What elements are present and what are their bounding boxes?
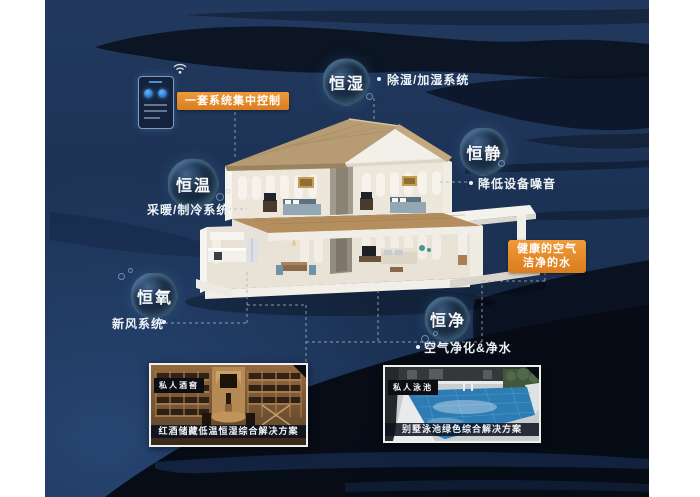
- poster: 一套系统集中控制 健康的空气 洁净的水 恒湿 恒静 恒温 恒氧 恒净 除湿/加湿…: [0, 0, 700, 497]
- healthy-air-water-label: 健康的空气 洁净的水: [508, 240, 586, 273]
- bubble-constant-humidity: 恒湿: [322, 58, 370, 106]
- clean-water-line: 洁净的水: [508, 256, 586, 270]
- phone-control-button: [144, 89, 153, 98]
- central-control-label: 一套系统集中控制: [177, 92, 289, 110]
- panel-caption-pool: 别墅泳池绿色综合解决方案: [385, 423, 539, 436]
- smart-control-panel: [138, 76, 174, 129]
- panel-tag-wine: 私人酒窖: [154, 378, 204, 393]
- bubble-constant-clean: 恒净: [424, 296, 470, 342]
- bubble-constant-oxygen: 恒氧: [130, 272, 178, 320]
- small-bubble-icon: [118, 273, 125, 280]
- small-bubble-icon: [433, 331, 438, 336]
- phone-title-bar: [149, 81, 162, 83]
- phone-row: [144, 104, 167, 106]
- phone-row: [144, 117, 160, 119]
- connector-dot: [416, 345, 420, 349]
- connector-dot: [226, 206, 230, 210]
- small-bubble-icon: [128, 268, 133, 273]
- phone-control-button: [158, 89, 167, 98]
- panel-tag-pool: 私人泳池: [388, 380, 438, 395]
- panel-wine-cellar: 私人酒窖 红酒储藏低温恒湿综合解决方案: [149, 363, 308, 447]
- caption-heating-cooling: 采暖/制冷系统: [147, 201, 229, 218]
- wifi-icon: [172, 61, 188, 75]
- small-bubble-icon: [366, 93, 373, 100]
- panel-pool: 私人泳池 别墅泳池绿色综合解决方案: [383, 365, 541, 443]
- corner-fold-icon: [526, 367, 539, 380]
- healthy-air-line: 健康的空气: [508, 242, 586, 256]
- caption-fresh-air: 新风系统: [112, 315, 164, 332]
- bubble-constant-quiet: 恒静: [459, 127, 508, 176]
- small-bubble-icon: [216, 193, 224, 201]
- caption-air-water-purify: 空气净化&净水: [424, 339, 512, 356]
- connector-dot: [162, 320, 166, 324]
- small-bubble-icon: [498, 160, 505, 167]
- phone-row: [144, 110, 167, 112]
- panel-caption-wine: 红酒储藏低温恒湿综合解决方案: [151, 425, 306, 438]
- connector-dot: [469, 181, 473, 185]
- connector-dot: [377, 77, 381, 81]
- caption-dehumidify: 除湿/加湿系统: [387, 71, 469, 88]
- corner-fold-icon: [293, 365, 306, 378]
- caption-noise-reduction: 降低设备噪音: [478, 175, 556, 192]
- small-bubble-icon: [226, 189, 231, 194]
